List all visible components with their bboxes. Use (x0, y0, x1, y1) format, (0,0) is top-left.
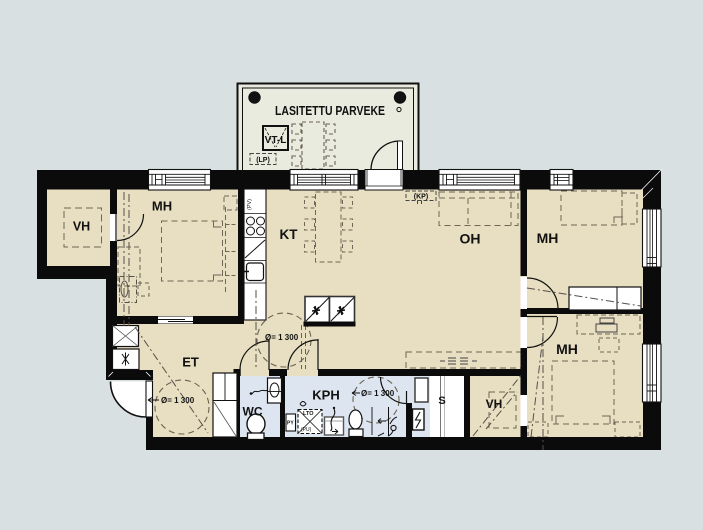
svg-text:(LP): (LP) (256, 157, 270, 164)
svg-text:(KP): (KP) (414, 194, 428, 201)
svg-text:OH: OH (460, 231, 481, 247)
svg-text:MH: MH (537, 230, 559, 246)
svg-text:WC: WC (243, 405, 263, 419)
svg-text:ET: ET (182, 355, 199, 370)
svg-text:S: S (438, 395, 445, 407)
svg-text:(PV): (PV) (247, 199, 253, 210)
svg-text:VT-L: VT-L (265, 135, 287, 146)
svg-text:(PU): (PU) (301, 427, 312, 433)
svg-text:Ø= 1 300: Ø= 1 300 (361, 389, 395, 398)
svg-text:Ø= 1 300: Ø= 1 300 (265, 333, 299, 342)
svg-text:PY: PY (287, 421, 294, 427)
svg-text:MH: MH (152, 199, 172, 214)
svg-text:LASITETTU PARVEKE: LASITETTU PARVEKE (275, 104, 385, 118)
svg-text:LTO: LTO (303, 411, 314, 417)
svg-text:Ø= 1 300: Ø= 1 300 (161, 396, 195, 405)
svg-text:KPH: KPH (312, 388, 339, 403)
svg-text:MH: MH (556, 341, 578, 357)
svg-text:KT: KT (280, 227, 299, 242)
svg-text:VH: VH (73, 220, 90, 234)
svg-text:VH: VH (486, 397, 503, 411)
